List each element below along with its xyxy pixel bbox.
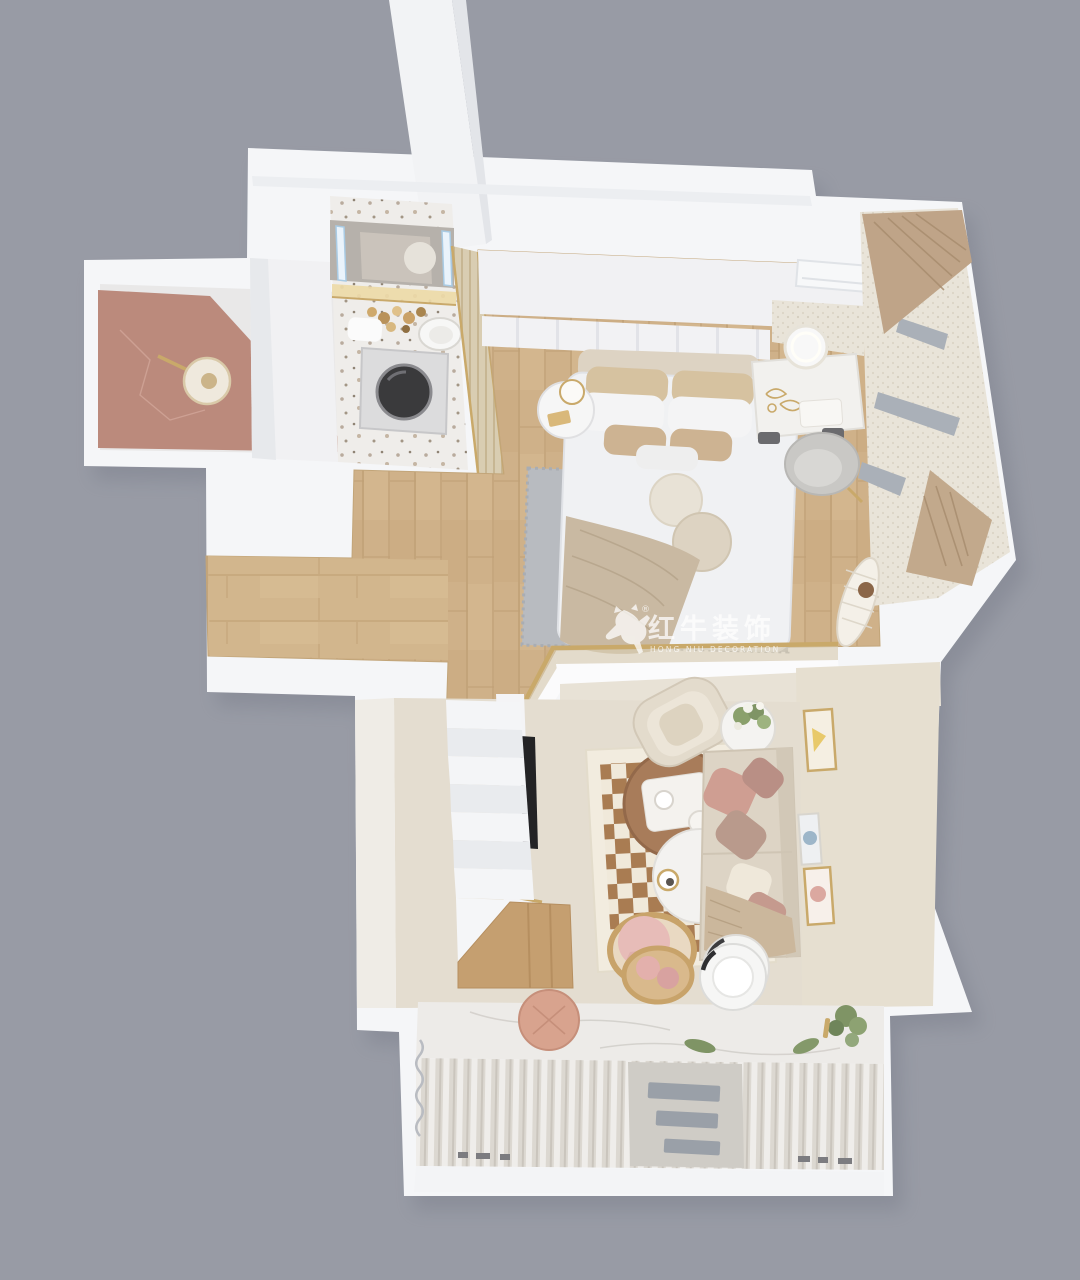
beige-sofa <box>700 748 800 960</box>
marble-ledge <box>416 1002 884 1064</box>
mirror-led-left <box>336 226 346 281</box>
vanity-tray <box>799 399 843 428</box>
watermark-brand-cn: 红牛装饰 <box>648 613 776 645</box>
watermark-brand-en: HONG NIU DECORATION <box>650 645 780 654</box>
boucle-chair-seat <box>794 449 842 487</box>
render-canvas: ® 红牛装饰 HONG NIU DECORATION <box>0 0 1080 1280</box>
low-table-dark-item <box>666 878 674 886</box>
apartment-render: ® 红牛装饰 HONG NIU DECORATION <box>0 0 1080 1280</box>
white-appliance-cylinder <box>700 944 766 1010</box>
art-3-shape <box>810 886 826 902</box>
basket-pink-towel-1 <box>636 956 660 980</box>
basket-pink-towel-2 <box>657 967 679 989</box>
table-lamp <box>560 380 584 404</box>
folded-towel <box>347 317 383 342</box>
vanity-leg-left <box>758 432 780 444</box>
landing-wood-floor <box>208 556 448 660</box>
vessel-sink-inner <box>429 326 453 344</box>
mirror-led-right <box>442 231 452 286</box>
white-stairs <box>446 700 534 900</box>
art-2-shape <box>803 831 817 845</box>
living-left-wall-strip <box>355 698 396 1008</box>
rain-shower-head-center <box>201 373 217 389</box>
bathroom <box>330 196 468 470</box>
rattan-basket <box>624 948 692 1002</box>
tray-cup <box>655 791 673 809</box>
knit-bench-center <box>858 582 874 598</box>
mirror-reflection-blob <box>404 242 436 274</box>
